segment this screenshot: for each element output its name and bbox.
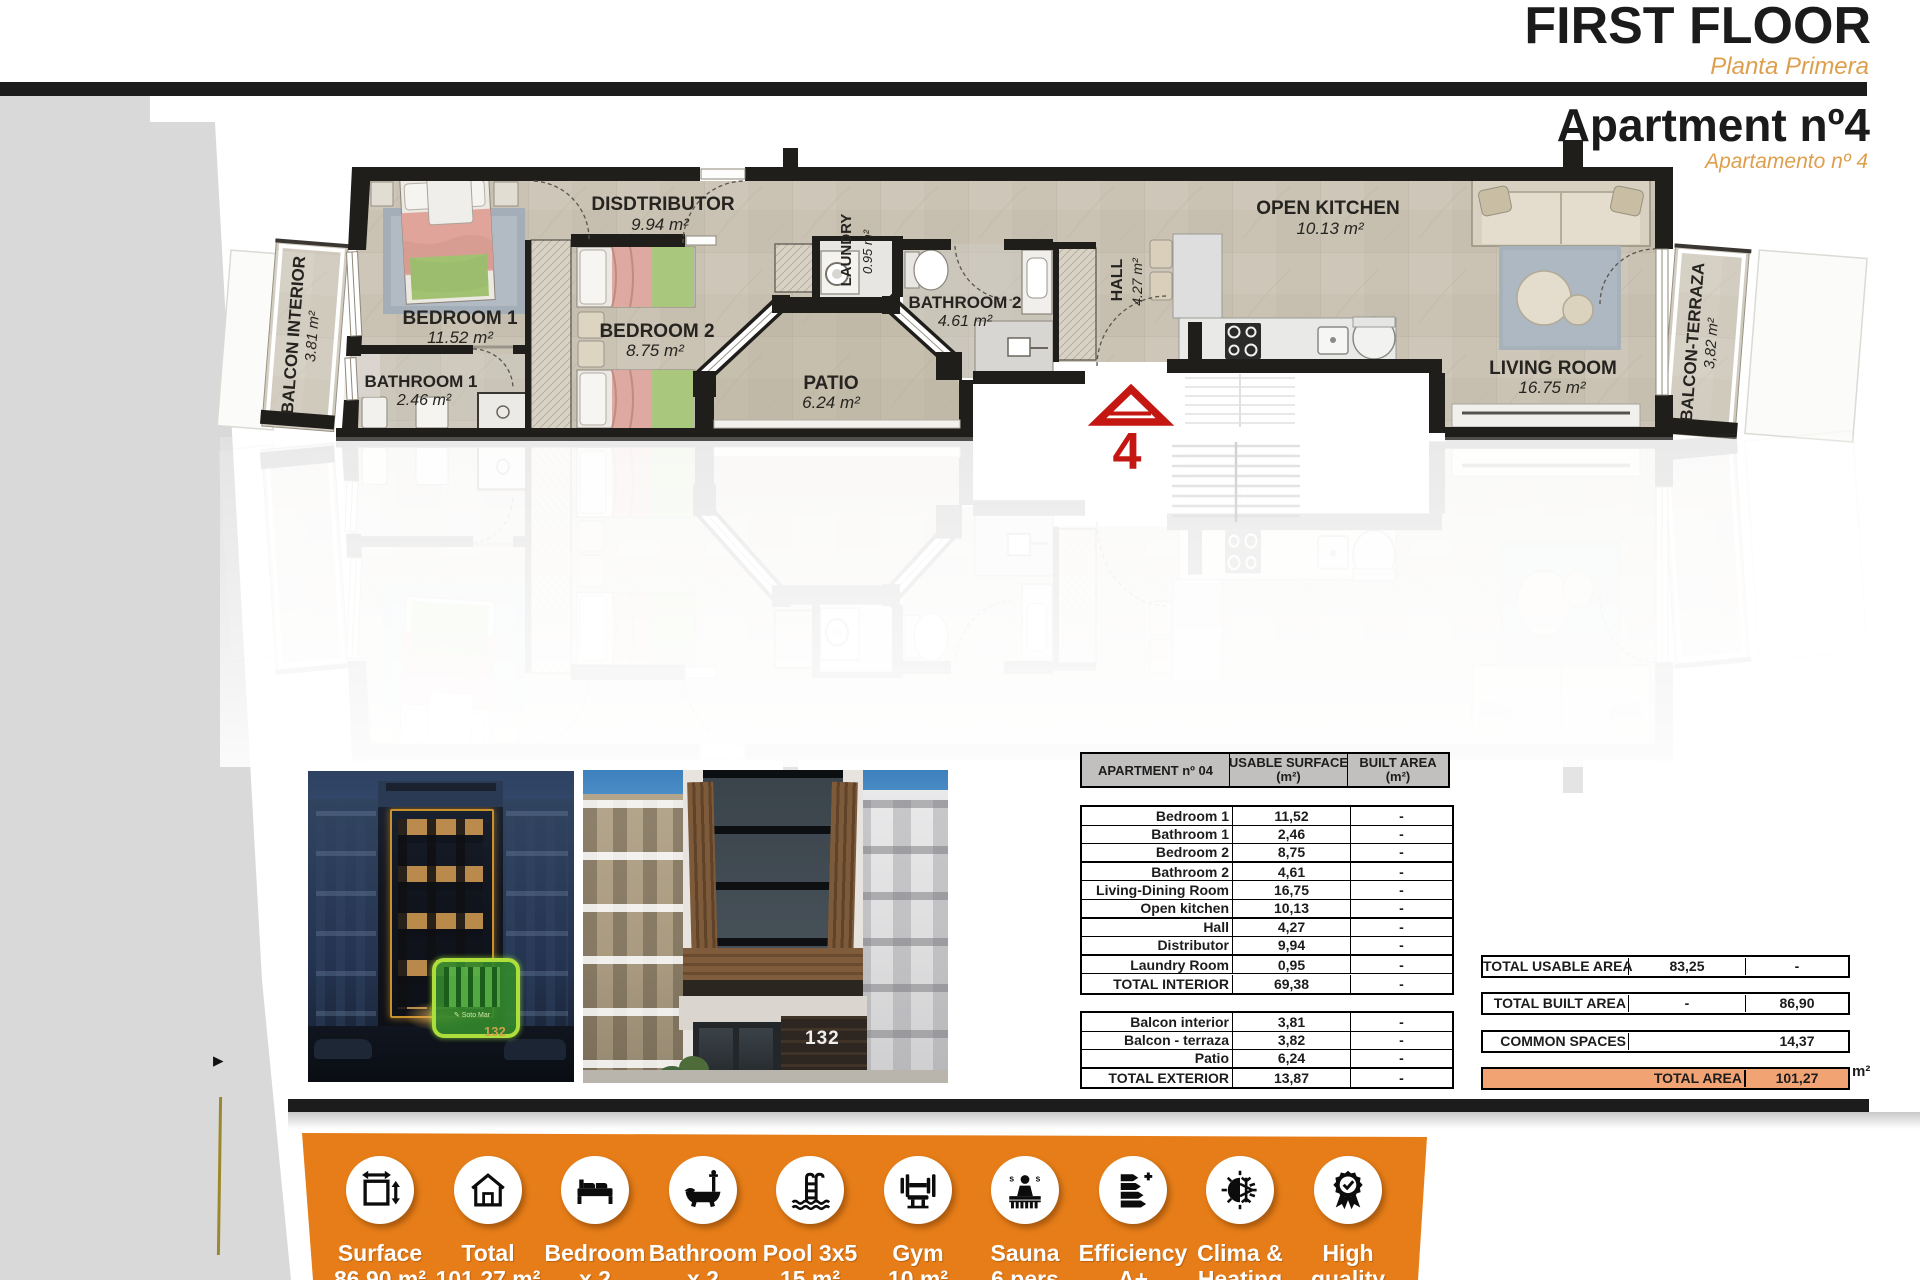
svg-text:BATHROOM 2: BATHROOM 2 xyxy=(908,293,1021,312)
svg-text:PATIO: PATIO xyxy=(803,373,858,394)
svg-text:4.27 m²: 4.27 m² xyxy=(1129,257,1145,306)
svg-text:OPEN KITCHEN: OPEN KITCHEN xyxy=(1256,198,1400,219)
svg-text:4: 4 xyxy=(1113,423,1142,481)
svg-text:s: s xyxy=(1036,1173,1041,1183)
svg-text:LIVING ROOM: LIVING ROOM xyxy=(1489,358,1617,379)
svg-text:0.95 m²: 0.95 m² xyxy=(860,229,875,274)
svg-text:HALL: HALL xyxy=(1109,258,1126,301)
svg-text:DISDTRIBUTOR: DISDTRIBUTOR xyxy=(591,194,734,215)
svg-text:16.75 m²: 16.75 m² xyxy=(1518,378,1586,397)
svg-text:2.46 m²: 2.46 m² xyxy=(396,392,452,409)
svg-text:8.75 m²: 8.75 m² xyxy=(626,341,685,360)
svg-text:11.52 m²: 11.52 m² xyxy=(427,328,494,347)
svg-text:BEDROOM 2: BEDROOM 2 xyxy=(599,321,714,342)
svg-text:BATHROOM 1: BATHROOM 1 xyxy=(364,372,477,391)
svg-text:6.24 m²: 6.24 m² xyxy=(802,393,861,412)
svg-text:4.61 m²: 4.61 m² xyxy=(938,313,993,330)
svg-text:10.13 m²: 10.13 m² xyxy=(1296,219,1364,238)
svg-text:s: s xyxy=(1009,1173,1014,1183)
svg-text:BEDROOM 1: BEDROOM 1 xyxy=(402,308,518,329)
svg-text:LAUNDRY: LAUNDRY xyxy=(838,214,855,287)
svg-text:9.94 m²: 9.94 m² xyxy=(631,215,690,234)
